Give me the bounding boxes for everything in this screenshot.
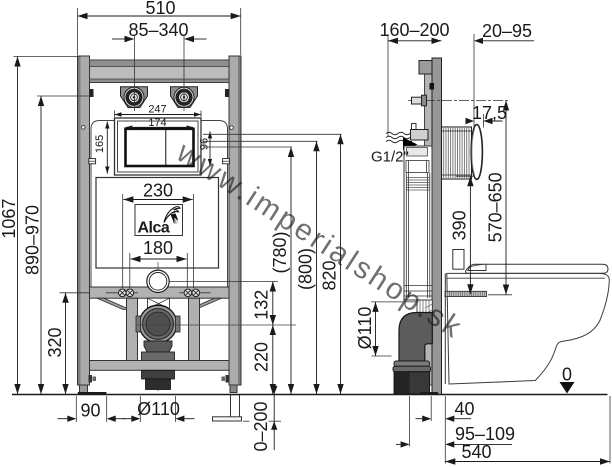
svg-text:40: 40: [454, 399, 474, 419]
svg-text:90: 90: [80, 401, 100, 421]
svg-text:510: 510: [145, 0, 175, 18]
svg-text:390: 390: [450, 210, 470, 240]
svg-text:0: 0: [562, 365, 572, 385]
svg-text:Ø110: Ø110: [355, 307, 375, 350]
svg-text:247: 247: [148, 104, 166, 116]
svg-text:320: 320: [45, 327, 65, 357]
svg-text:17,5: 17,5: [472, 103, 507, 123]
svg-text:95–109: 95–109: [455, 424, 515, 444]
svg-text:174: 174: [148, 117, 166, 129]
svg-text:165: 165: [94, 135, 106, 153]
svg-text:230: 230: [143, 181, 173, 201]
svg-text:Alca: Alca: [138, 220, 170, 237]
svg-text:180: 180: [143, 238, 173, 258]
svg-text:570–650: 570–650: [485, 172, 505, 242]
svg-text:0–200: 0–200: [251, 401, 271, 451]
svg-text:1067: 1067: [0, 199, 19, 239]
svg-text:Ø110: Ø110: [137, 399, 180, 419]
svg-text:160–200: 160–200: [379, 20, 449, 40]
svg-text:890–970: 890–970: [22, 205, 42, 275]
svg-text:85–340: 85–340: [128, 20, 188, 40]
svg-text:20–95: 20–95: [482, 21, 532, 41]
svg-text:220: 220: [251, 342, 271, 372]
svg-text:540: 540: [461, 442, 491, 462]
svg-text:G1/2": G1/2": [371, 149, 409, 166]
svg-text:132: 132: [251, 290, 271, 320]
